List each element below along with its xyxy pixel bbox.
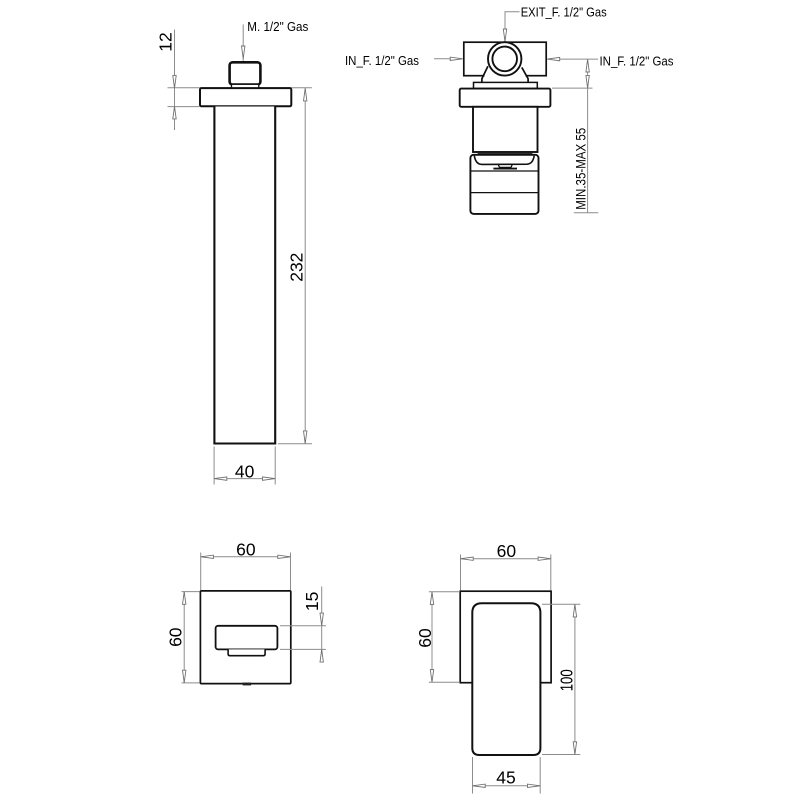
svg-text:60: 60 bbox=[415, 628, 435, 648]
svg-text:45: 45 bbox=[496, 768, 515, 788]
svg-text:100: 100 bbox=[556, 669, 576, 691]
svg-text:M. 1/2" Gas: M. 1/2" Gas bbox=[247, 19, 308, 34]
svg-text:60: 60 bbox=[497, 541, 517, 561]
svg-text:IN_F. 1/2" Gas: IN_F. 1/2" Gas bbox=[600, 53, 674, 68]
svg-text:232: 232 bbox=[286, 253, 306, 282]
svg-text:60: 60 bbox=[166, 627, 186, 647]
svg-text:40: 40 bbox=[235, 461, 255, 481]
svg-text:15: 15 bbox=[302, 592, 322, 611]
svg-text:EXIT_F. 1/2" Gas: EXIT_F. 1/2" Gas bbox=[521, 5, 607, 20]
svg-text:12: 12 bbox=[155, 32, 175, 51]
svg-text:IN_F. 1/2" Gas: IN_F. 1/2" Gas bbox=[345, 53, 419, 68]
svg-text:MIN.35-MAX 55: MIN.35-MAX 55 bbox=[572, 128, 588, 210]
svg-text:60: 60 bbox=[236, 539, 256, 559]
